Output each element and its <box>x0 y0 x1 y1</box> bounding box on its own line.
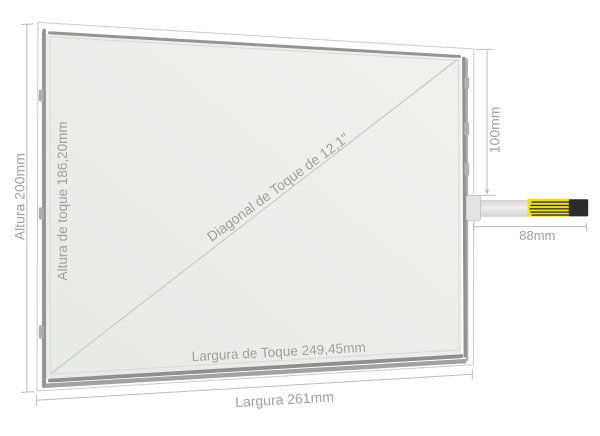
svg-text:100mm: 100mm <box>487 107 503 154</box>
svg-text:Altura de toque 186,20mm: Altura de toque 186,20mm <box>55 121 70 280</box>
svg-text:88mm: 88mm <box>519 228 555 243</box>
svg-text:Altura 200mm: Altura 200mm <box>11 153 27 240</box>
